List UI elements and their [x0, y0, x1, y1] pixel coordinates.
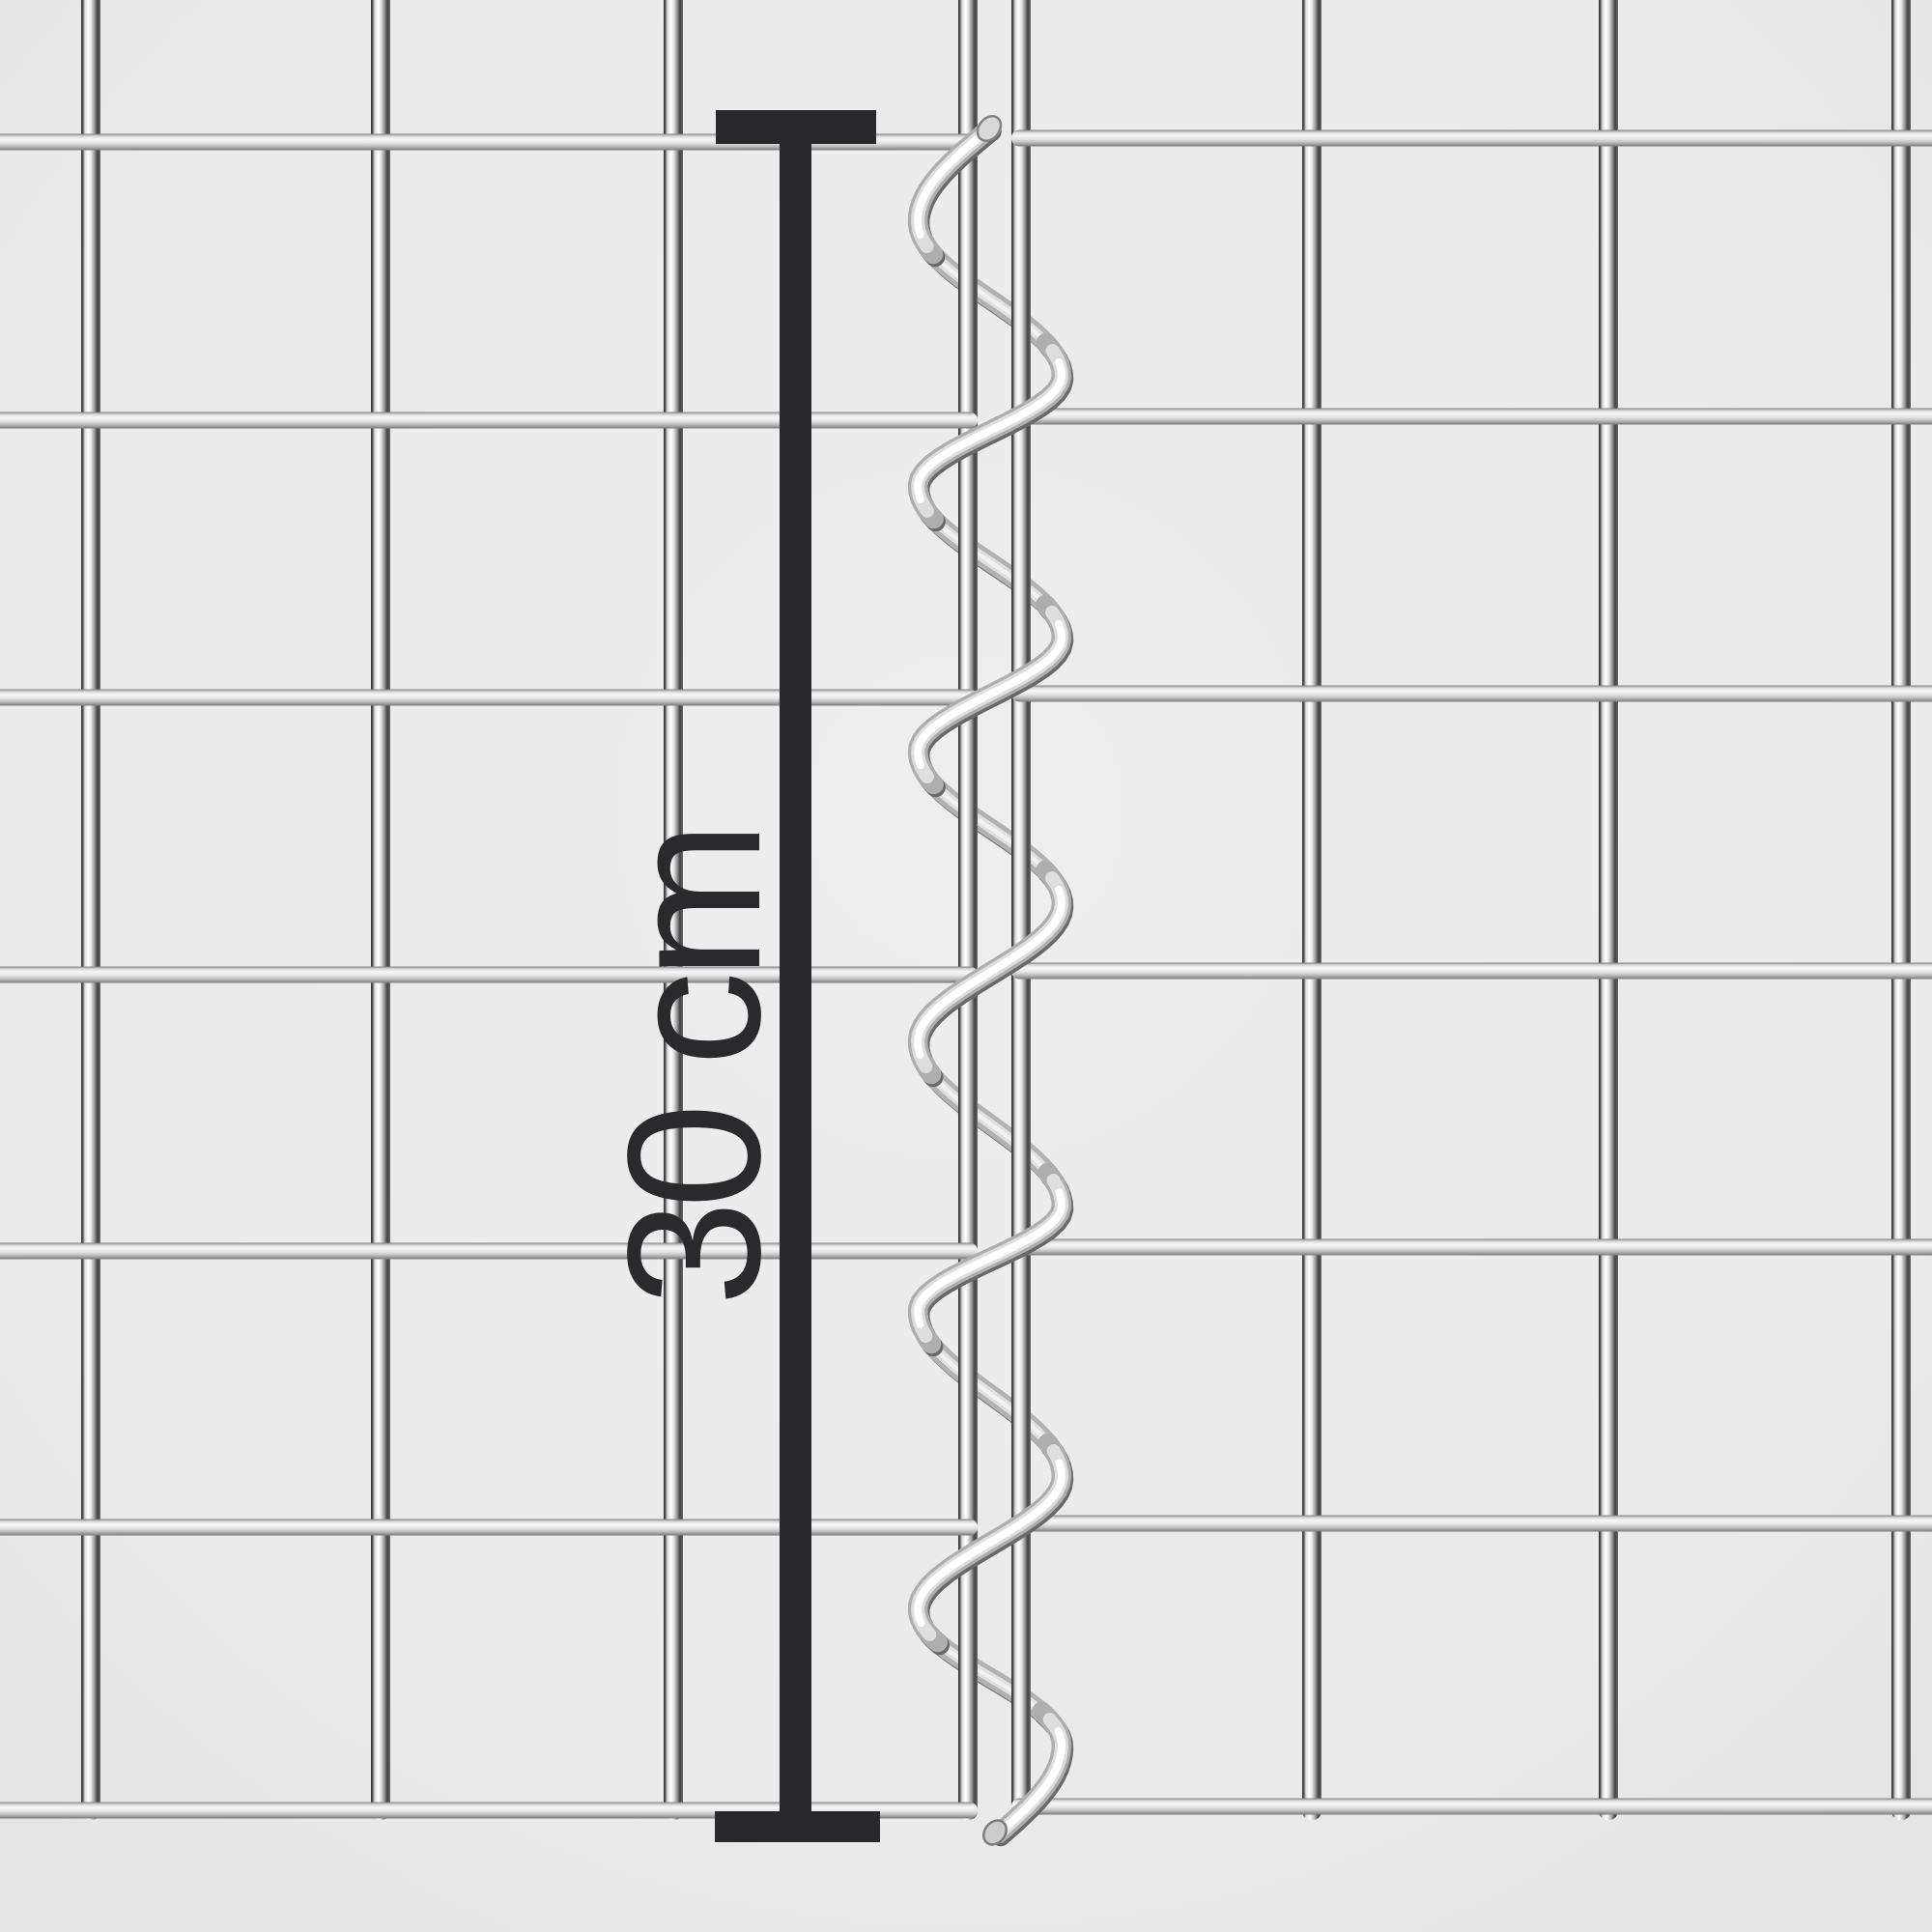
svg-text:30 cm: 30 cm	[588, 829, 800, 1306]
